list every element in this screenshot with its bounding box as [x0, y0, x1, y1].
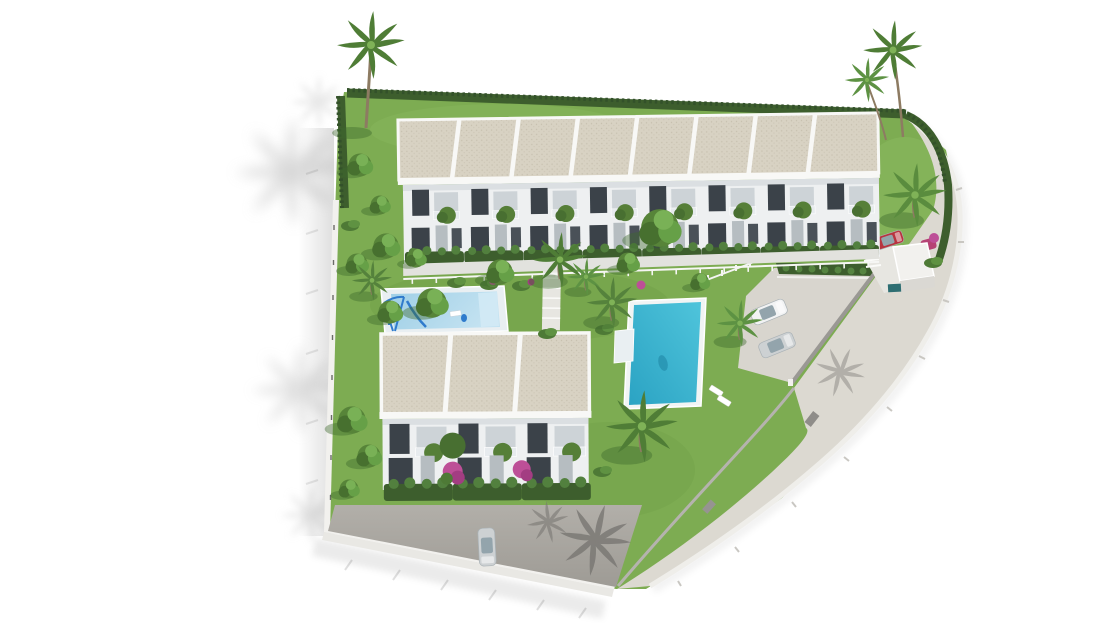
flower-cluster	[637, 281, 646, 290]
south-eave-parapet	[379, 411, 591, 419]
pool-plant-box	[888, 284, 901, 293]
palm-ground-shadow-nw	[332, 127, 372, 139]
patio-planter-tree	[440, 433, 466, 459]
north-townhouse-row	[397, 113, 881, 284]
figure-by-pool	[461, 314, 467, 322]
main-pool-water	[629, 302, 701, 405]
south-townhouse-block	[379, 333, 592, 501]
south-facade-shade	[382, 418, 588, 425]
parking-curb	[777, 277, 873, 278]
driveway-car-silver	[478, 528, 497, 567]
flower-east	[929, 233, 939, 243]
south-roof	[381, 333, 589, 414]
render-canvas	[0, 0, 1110, 623]
site-plan-render	[0, 0, 1110, 623]
main-pool-deck-notch	[614, 329, 634, 363]
parking-wall-post-bottom	[788, 379, 793, 386]
kids-pool-steps	[478, 292, 499, 327]
